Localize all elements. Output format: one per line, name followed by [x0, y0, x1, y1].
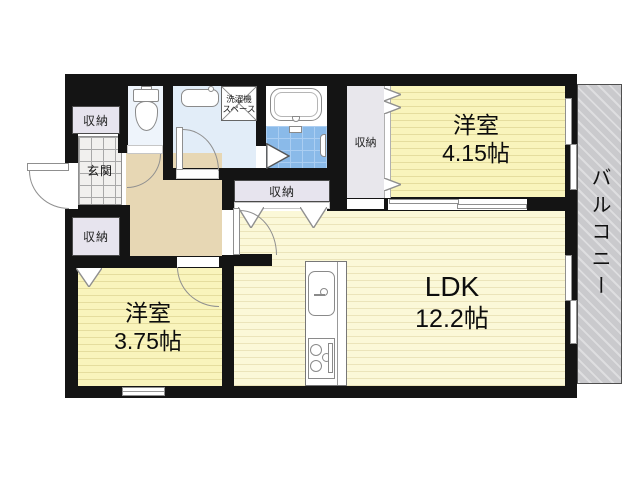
sliding-panel-left — [389, 199, 459, 204]
ldk-size: 12.2帖 — [372, 304, 532, 334]
storage-chevron-icon — [300, 207, 327, 228]
stove-grill — [328, 343, 333, 373]
closet-chevron-icon — [384, 88, 401, 101]
storage-bottom-left-label: 収納 — [83, 228, 109, 245]
ldk-window-pane1 — [565, 255, 572, 301]
front-door-swing-arc — [29, 171, 69, 209]
storage-ldk-wall: 収納 — [234, 180, 330, 202]
ldk-label: LDK 12.2帖 — [372, 270, 532, 334]
bedroom1-window-pane2 — [570, 144, 577, 190]
storage-bedroom1: 収納 — [347, 86, 384, 198]
bedroom1-name: 洋室 — [396, 112, 556, 140]
bathroom-door-handle — [320, 134, 326, 157]
ldk-name: LDK — [372, 270, 532, 304]
wall-top-left-block — [65, 86, 122, 106]
laundry-label-line1: 洗濯機 — [226, 94, 252, 104]
stove-burner — [310, 360, 322, 372]
ldk-window-pane2 — [570, 300, 577, 344]
laundry-space: 洗濯機 スペース — [221, 86, 257, 121]
storage-chevron-icon — [76, 268, 102, 287]
wall-hall-ldk — [222, 168, 234, 398]
sliding-panel-right — [457, 204, 527, 209]
kitchen-counter-edge — [337, 262, 338, 385]
storage-top-left: 収納 — [72, 106, 120, 134]
entrance-area: 玄関 — [78, 136, 122, 205]
wall-top — [65, 74, 577, 86]
floor-plan: バルコニー 玄関 収納 収納 収納 収納 — [0, 0, 640, 480]
ldk-door-leaf — [233, 208, 240, 255]
washroom-sink — [181, 89, 219, 107]
bathroom-folding-door-icon — [266, 143, 290, 169]
kitchen-faucet-lever — [314, 294, 325, 296]
closet-opening — [347, 199, 384, 209]
closet-chevron-icon — [384, 178, 401, 191]
bathroom-step — [289, 126, 302, 133]
bathtub-inner — [274, 92, 318, 117]
bedroom2-name: 洋室 — [68, 300, 228, 328]
bedroom2-door-opening — [177, 257, 219, 267]
bedroom1-window-pane1 — [565, 98, 572, 145]
balcony-area: バルコニー — [577, 84, 622, 384]
wall-door-stub — [234, 254, 272, 266]
wall-wash-bath-divider — [256, 86, 266, 146]
bedroom2-size: 3.75帖 — [68, 328, 228, 356]
storage-ldk-label: 収納 — [269, 183, 295, 200]
storage-bottom-left: 収納 — [72, 217, 120, 256]
bedroom2-window-line — [123, 391, 164, 392]
bedroom1-size: 4.15帖 — [396, 140, 556, 168]
washroom-door-leaf — [176, 127, 183, 170]
balcony-label: バルコニー — [585, 167, 614, 302]
wall-toilet-right — [163, 86, 173, 180]
storage-bedroom1-label: 収納 — [355, 134, 377, 150]
bedroom1-label: 洋室 4.15帖 — [396, 112, 556, 167]
laundry-label-line2: スペース — [223, 104, 256, 114]
bedroom2-label: 洋室 3.75帖 — [68, 300, 228, 355]
wall-storage-right — [120, 205, 130, 257]
stove-burner — [310, 344, 322, 356]
washroom-faucet — [208, 86, 214, 92]
wall-bathroom-right — [327, 86, 347, 198]
storage-top-left-label: 収納 — [83, 112, 109, 129]
toilet-door-threshold — [127, 145, 163, 154]
front-door-leaf — [27, 163, 69, 171]
entrance-label: 玄関 — [87, 162, 113, 179]
